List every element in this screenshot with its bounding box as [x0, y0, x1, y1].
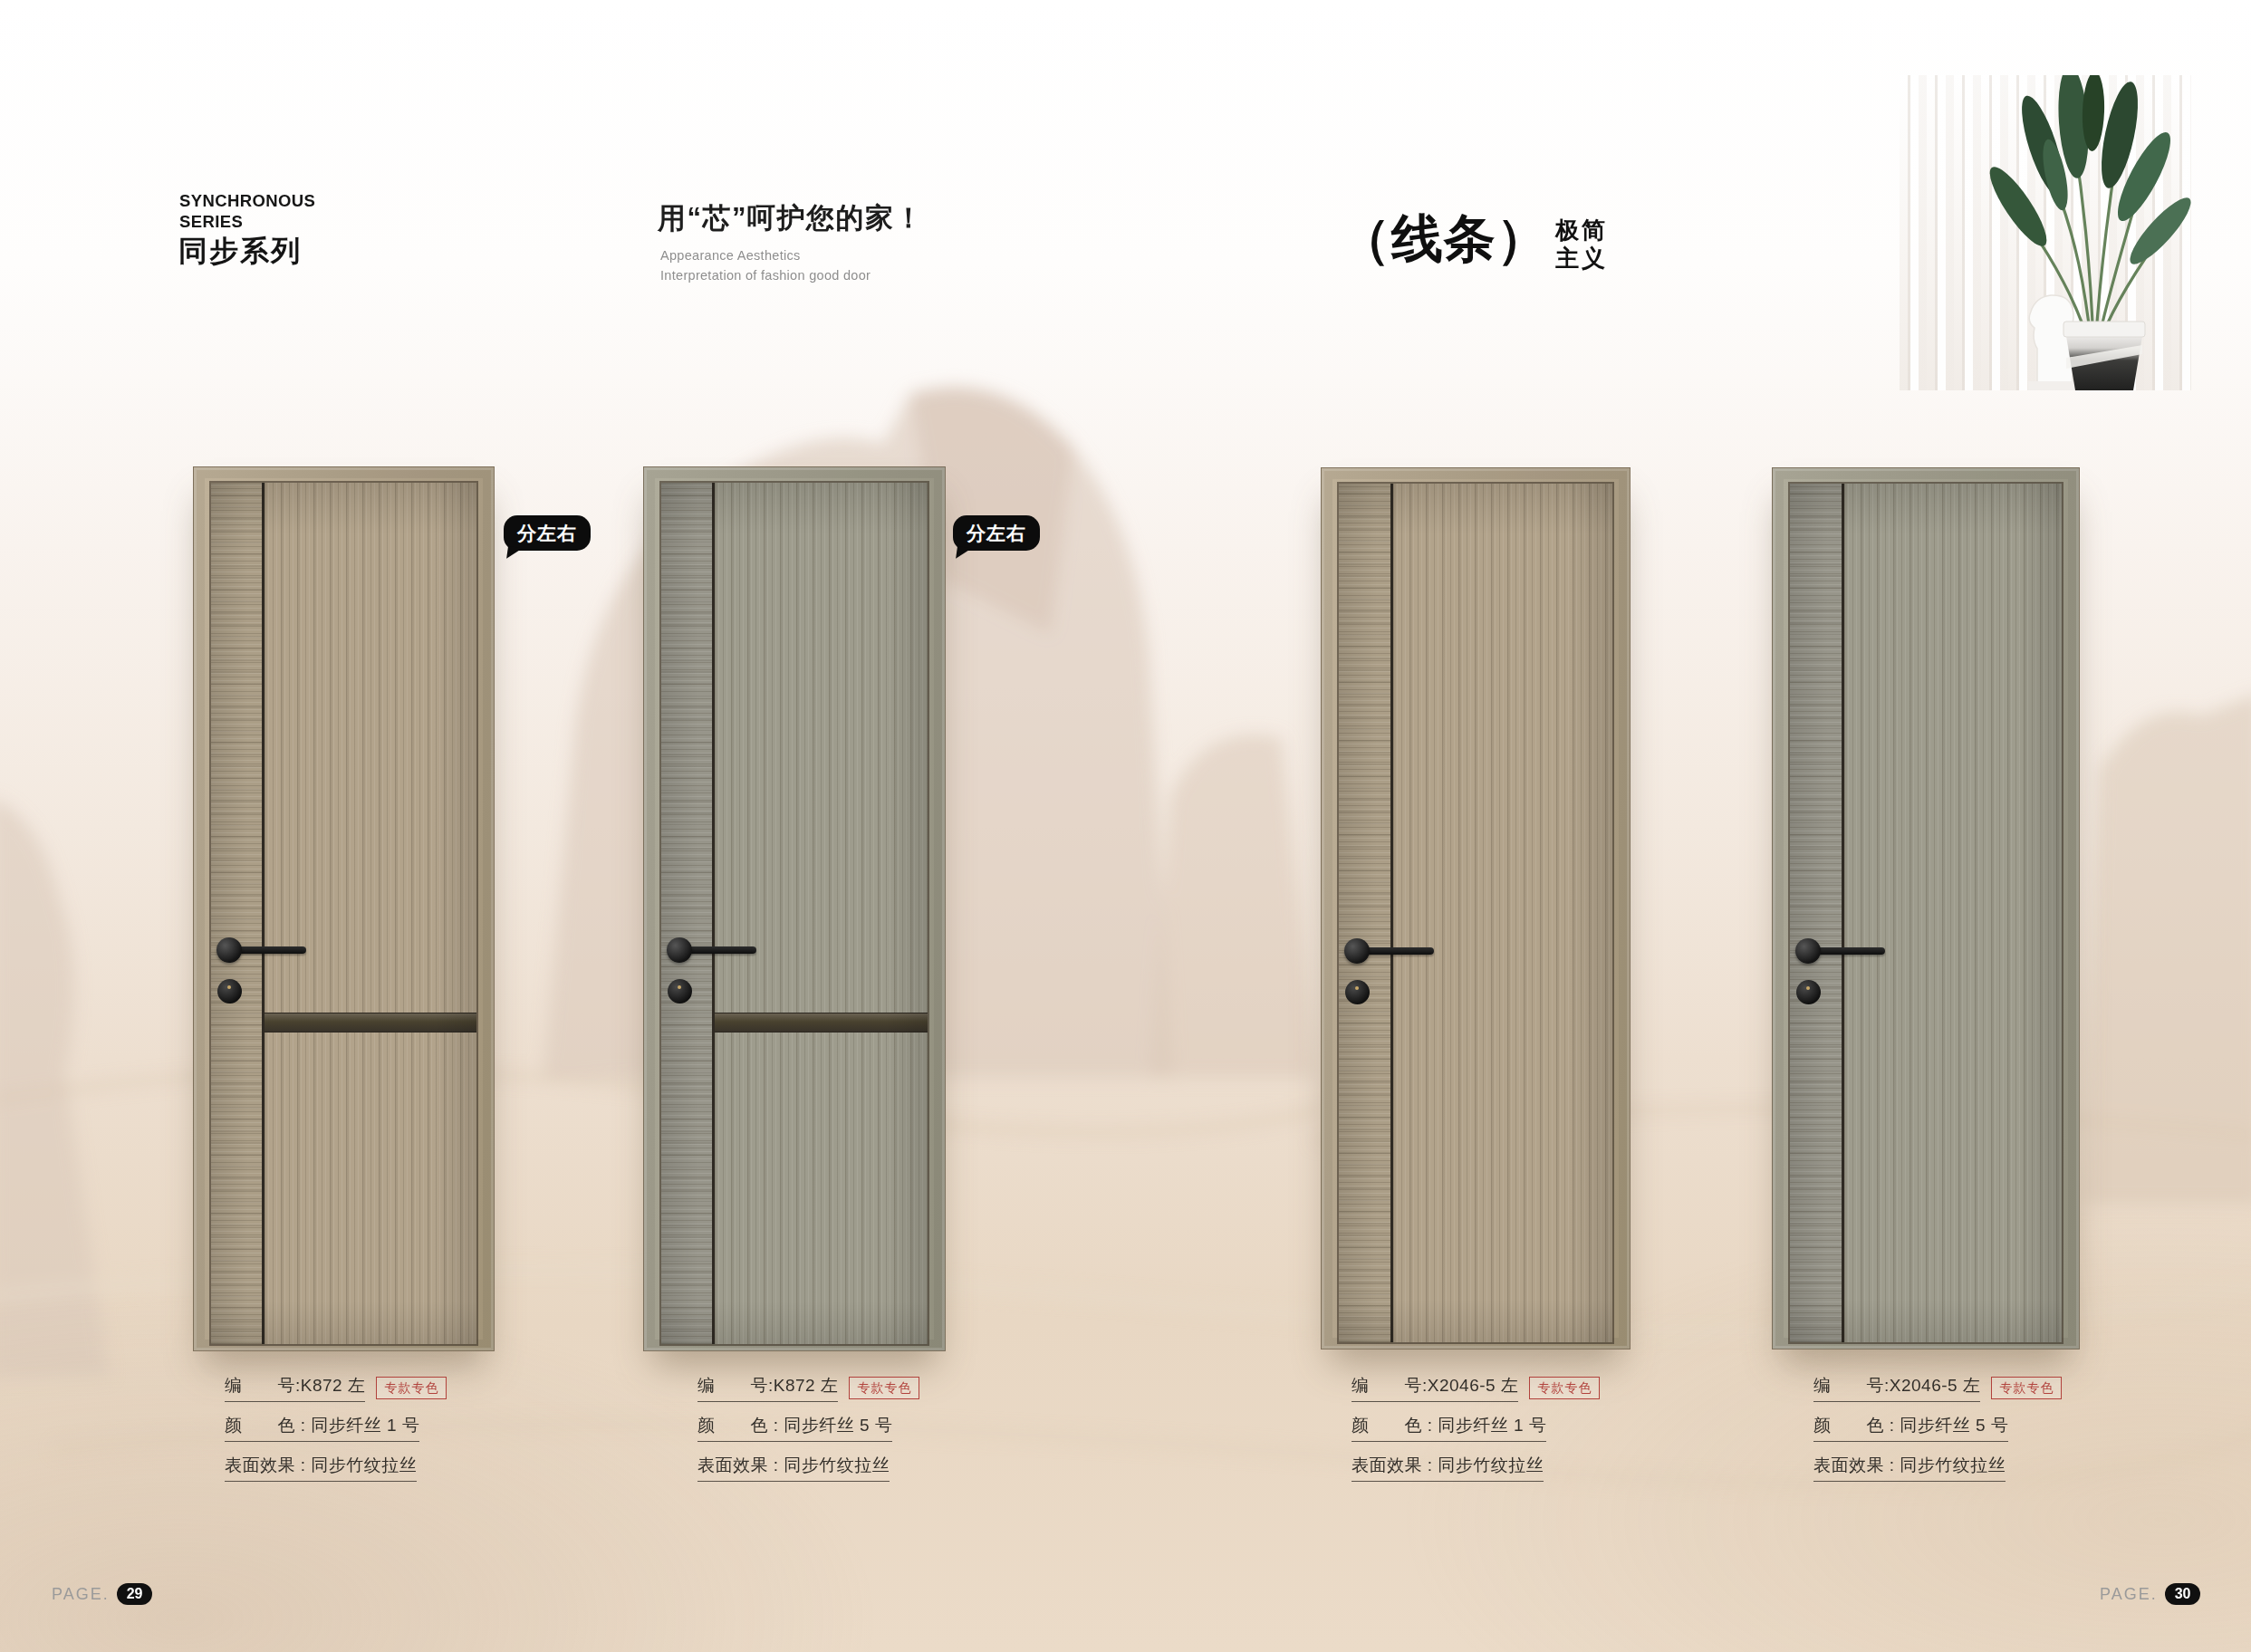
lock-cylinder	[1796, 980, 1821, 1004]
series-title-cn: 同步系列	[178, 232, 302, 272]
door-handle	[216, 937, 325, 1010]
spec-row-color: 颜 色 : 同步纤丝 1 号	[1352, 1414, 1600, 1442]
spec-row-code: 编 号:K872 左 专款专色	[697, 1374, 919, 1402]
door-strip-horizontal-grain	[211, 483, 262, 1344]
door-surface: 表面效果 : 同步竹纹拉丝	[1813, 1454, 2006, 1482]
door-code: 编 号:K872 左	[697, 1374, 838, 1402]
special-color-badge: 专款专色	[376, 1377, 447, 1399]
style-title-words: 极简 主义	[1555, 216, 1608, 272]
spec-row-code: 编 号:X2046-5 左 专款专色	[1352, 1374, 1600, 1402]
door-horizontal-bar	[265, 1013, 476, 1032]
spec-row-code: 编 号:K872 左 专款专色	[225, 1374, 447, 1402]
door-spec-3: 编 号:X2046-5 左 专款专色 颜 色 : 同步纤丝 1 号 表面效果 :…	[1352, 1374, 1600, 1494]
door-surface: 表面效果 : 同步竹纹拉丝	[697, 1454, 890, 1482]
door-leaf	[659, 481, 929, 1346]
door-panel-vertical-grain	[265, 483, 476, 1344]
series-title-en: SYNCHRONOUS SERIES	[179, 191, 315, 232]
handle-rosette	[216, 937, 242, 963]
door-code: 编 号:K872 左	[225, 1374, 365, 1402]
door-panel-vertical-grain	[1844, 484, 2062, 1342]
door-color: 颜 色 : 同步纤丝 1 号	[1352, 1414, 1546, 1442]
door-strip-horizontal-grain	[1790, 484, 1842, 1342]
handle-rosette	[667, 937, 692, 963]
plant-photo	[1900, 75, 2191, 390]
spec-row-surface: 表面效果 : 同步竹纹拉丝	[1813, 1454, 2062, 1482]
door-strip-horizontal-grain	[1339, 484, 1390, 1342]
door-handle	[667, 937, 775, 1010]
plant-illustration	[1900, 75, 2191, 390]
door-panel-vertical-grain	[715, 483, 928, 1344]
door-handle	[1795, 938, 1904, 1011]
spec-row-color: 颜 色 : 同步纤丝 5 号	[697, 1414, 919, 1442]
footer-left: PAGE. 29	[52, 1583, 152, 1605]
lock-cylinder	[668, 979, 692, 1004]
door-leaf	[1337, 482, 1614, 1344]
spec-row-color: 颜 色 : 同步纤丝 5 号	[1813, 1414, 2062, 1442]
spec-row-surface: 表面效果 : 同步竹纹拉丝	[225, 1454, 447, 1482]
door-panel-vertical-grain	[1393, 484, 1612, 1342]
spec-row-color: 颜 色 : 同步纤丝 1 号	[225, 1414, 447, 1442]
special-color-badge: 专款专色	[1991, 1377, 2062, 1399]
door-leaf	[1788, 482, 2063, 1344]
style-title-bracket: （线条）	[1339, 211, 1549, 265]
footer-right: PAGE. 30	[2100, 1583, 2200, 1605]
handle-rosette	[1795, 938, 1821, 964]
door-code: 编 号:X2046-5 左	[1813, 1374, 1980, 1402]
style-title: （线条） 极简 主义	[1339, 211, 1608, 272]
lock-cylinder	[1345, 980, 1370, 1004]
door-x2046-5-color5	[1772, 467, 2080, 1349]
door-leaf	[209, 481, 478, 1346]
special-color-badge: 专款专色	[1529, 1377, 1600, 1399]
door-handle	[1344, 938, 1453, 1011]
style-word-top: 极简	[1555, 216, 1608, 245]
style-word-bottom: 主义	[1555, 245, 1608, 273]
door-surface: 表面效果 : 同步竹纹拉丝	[225, 1454, 417, 1482]
lock-cylinder	[217, 979, 242, 1004]
split-left-right-bubble: 分左右	[953, 515, 1040, 551]
spec-row-surface: 表面效果 : 同步竹纹拉丝	[697, 1454, 919, 1482]
door-color: 颜 色 : 同步纤丝 5 号	[697, 1414, 892, 1442]
slogan-cn: 用“芯”呵护您的家！	[658, 199, 924, 237]
special-color-badge: 专款专色	[849, 1377, 919, 1399]
door-k872-color1	[193, 466, 495, 1351]
spec-row-surface: 表面效果 : 同步竹纹拉丝	[1352, 1454, 1600, 1482]
door-k872-color5	[643, 466, 946, 1351]
door-strip-horizontal-grain	[661, 483, 712, 1344]
spec-row-code: 编 号:X2046-5 左 专款专色	[1813, 1374, 2062, 1402]
page-label: PAGE.	[2100, 1585, 2158, 1604]
split-left-right-bubble: 分左右	[504, 515, 591, 551]
door-color: 颜 色 : 同步纤丝 1 号	[225, 1414, 419, 1442]
door-x2046-5-color1	[1321, 467, 1631, 1349]
door-color: 颜 色 : 同步纤丝 5 号	[1813, 1414, 2008, 1442]
page-number-pill: 29	[117, 1583, 153, 1605]
door-horizontal-bar	[715, 1013, 928, 1032]
page-number-pill: 30	[2165, 1583, 2201, 1605]
page-label: PAGE.	[52, 1585, 110, 1604]
handle-rosette	[1344, 938, 1370, 964]
door-spec-4: 编 号:X2046-5 左 专款专色 颜 色 : 同步纤丝 5 号 表面效果 :…	[1813, 1374, 2062, 1494]
slogan-en: Appearance Aesthetics Interpretation of …	[660, 246, 871, 286]
door-spec-1: 编 号:K872 左 专款专色 颜 色 : 同步纤丝 1 号 表面效果 : 同步…	[225, 1374, 447, 1494]
door-code: 编 号:X2046-5 左	[1352, 1374, 1518, 1402]
door-spec-2: 编 号:K872 左 专款专色 颜 色 : 同步纤丝 5 号 表面效果 : 同步…	[697, 1374, 919, 1494]
door-surface: 表面效果 : 同步竹纹拉丝	[1352, 1454, 1544, 1482]
